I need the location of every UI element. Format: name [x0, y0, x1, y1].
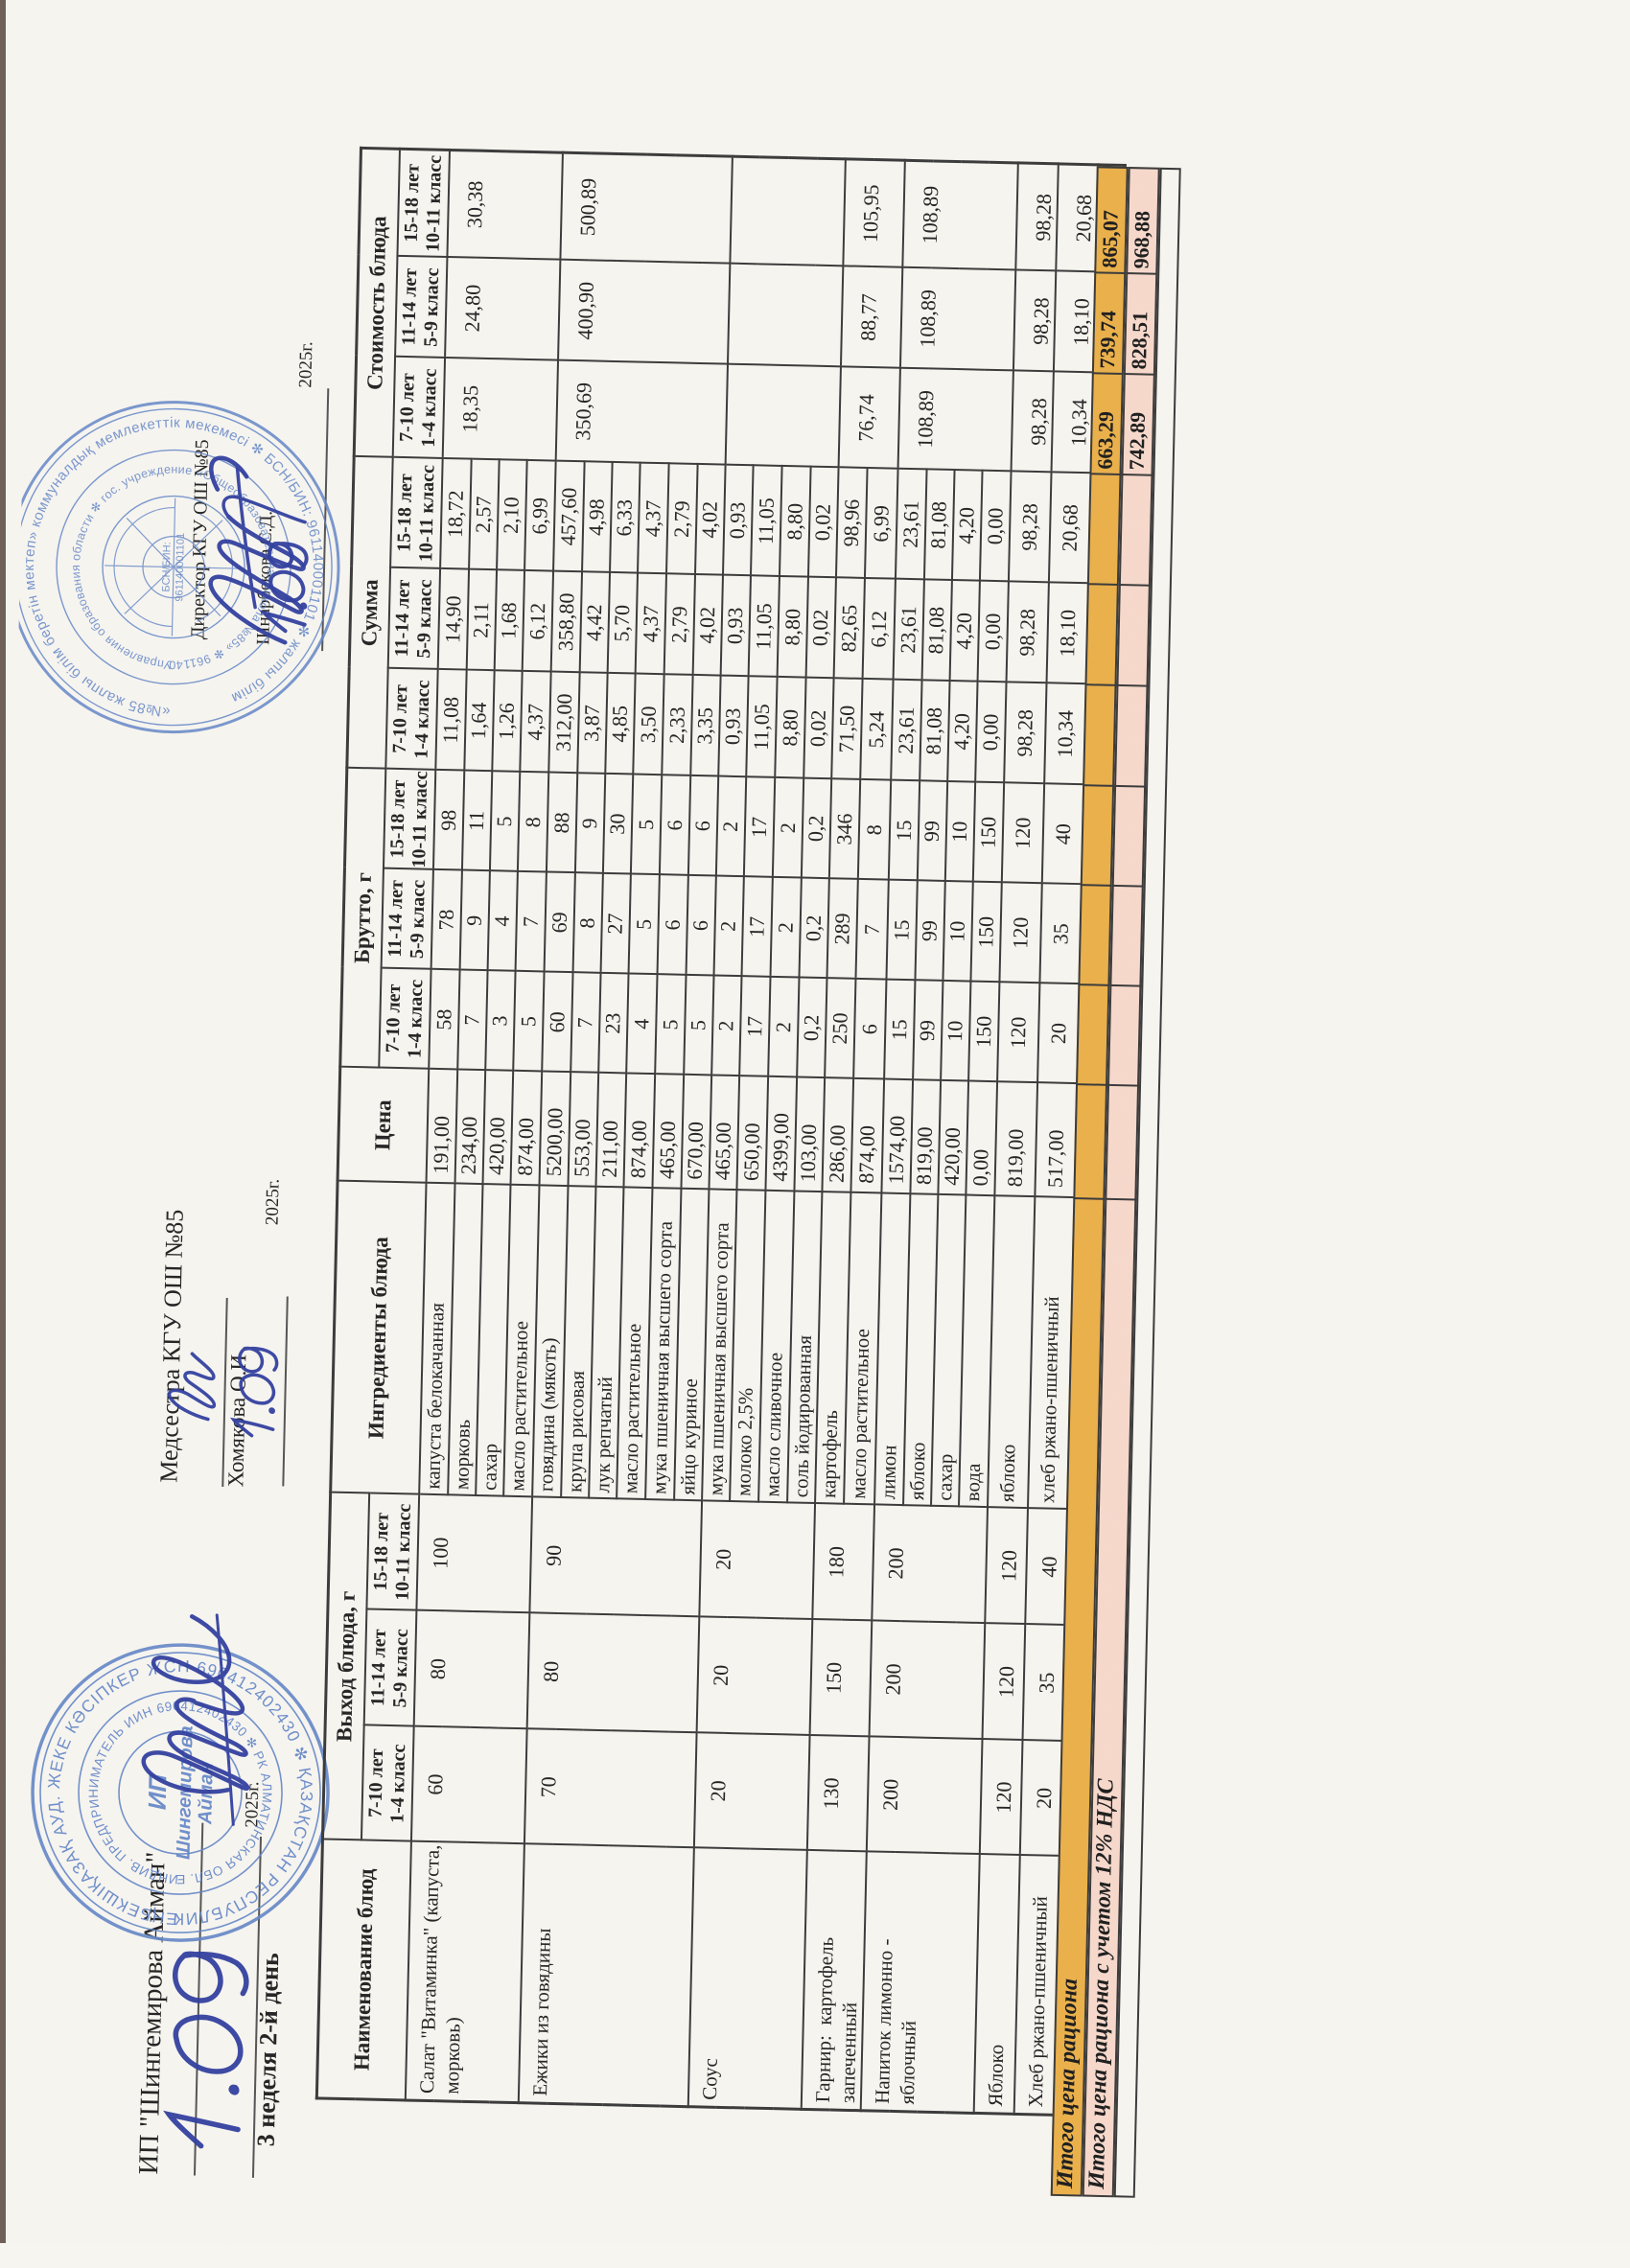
svg-text:ЕҢБЕКШІҚАЗАҚ АУД. ЖЕКЕ КӘСІПК: ЕҢБЕКШІҚАЗАҚ АУД. ЖЕКЕ КӘСІПКЕР ЖСН 6904…	[0, 1652, 319, 2246]
svg-text:Управления образования области: Управления образования области ✻ гос. уч…	[0, 459, 281, 2241]
svg-text:БСН/БИН:: БСН/БИН:	[160, 542, 173, 591]
svg-text:961140001101: 961140001101	[174, 533, 187, 602]
